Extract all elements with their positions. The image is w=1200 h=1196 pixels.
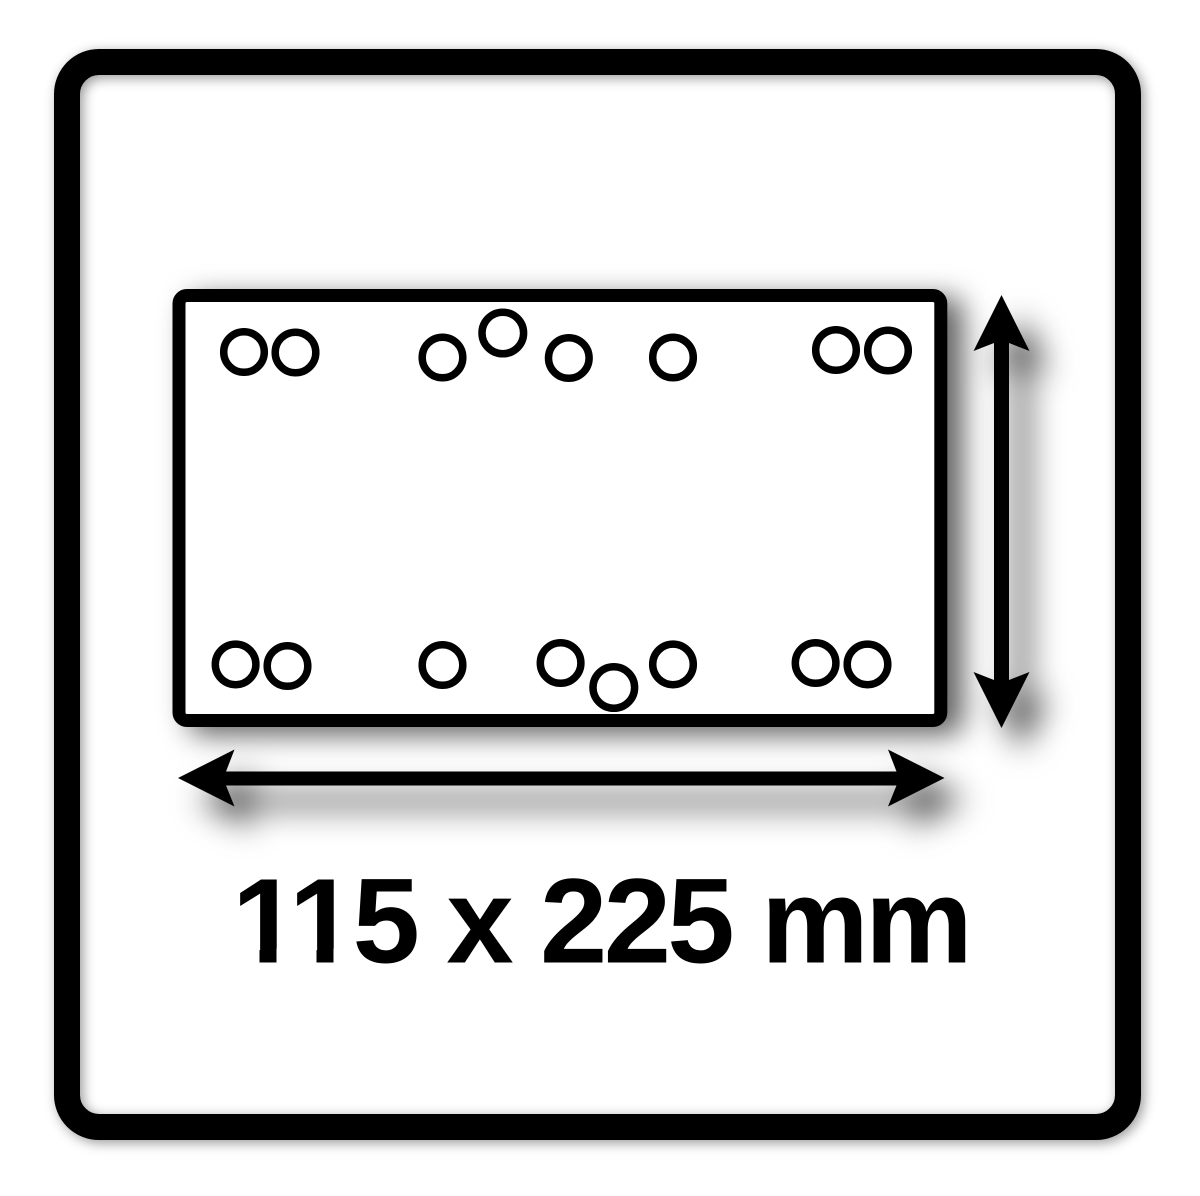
svg-text:115 x 225 mm: 115 x 225 mm xyxy=(232,853,969,989)
